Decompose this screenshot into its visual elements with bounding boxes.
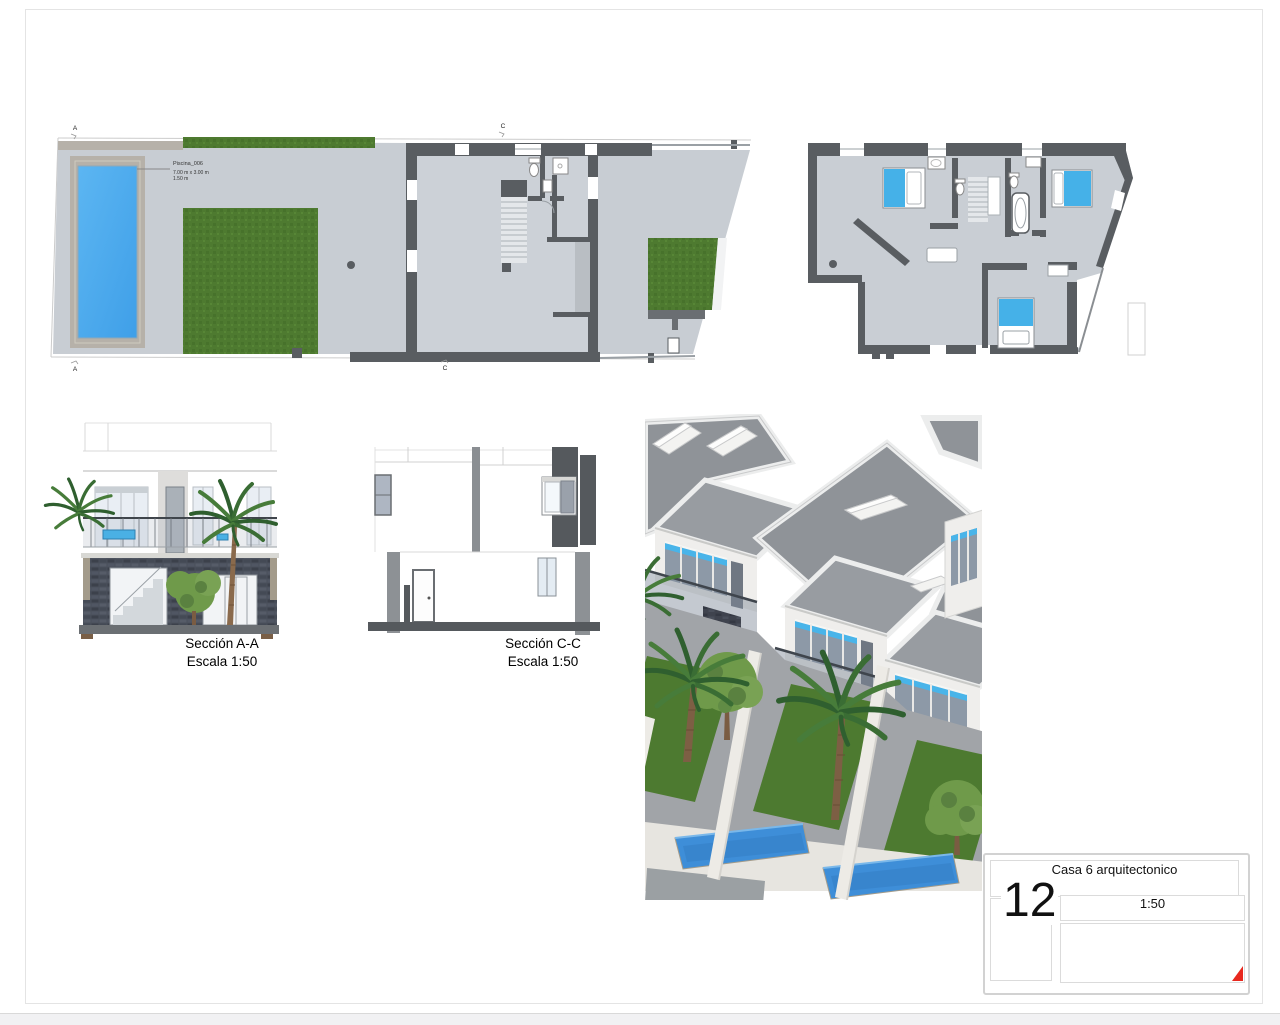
lawn [183,208,318,354]
section-aa-title: Sección A-A [185,636,259,651]
pool-label-name: Piscina_006 [173,161,203,167]
sink [543,180,552,192]
section-cc-title: Sección C-C [505,636,581,651]
pool [78,166,137,338]
sheet-scale-box: 1:50 [1060,895,1245,921]
upper-floor-plan [800,135,1150,365]
ground-floor-plan: Piscina_006 7.00 m x 3.00 m 1.50 m [45,118,790,376]
lounge-furniture [103,530,135,539]
pool-label-depth: 1.50 m [173,176,188,182]
sheet-title: Casa 6 arquitectonico [1052,862,1178,877]
title-block: Casa 6 arquitectonico 12 1:50 [983,853,1250,995]
page-margin-strip [0,1013,1280,1025]
toilet [530,164,539,177]
title-block-note-box [1060,923,1245,983]
section-aa-scale: Escala 1:50 [187,654,258,669]
shower [553,158,568,174]
section-cc-drawing: Sección C-C Escala 1:50 [368,428,600,676]
drawing-sheet: { "sheet": { "title": "Casa 6 arquitecto… [0,0,1280,1024]
section-cc-scale: Escala 1:50 [508,654,579,669]
section-aa-drawing: Sección A-A Escala 1:50 [75,415,285,675]
door [413,570,434,622]
sheet-number: 12 [1001,877,1058,925]
stairs [968,177,988,222]
section-marker-a-top: A [73,125,78,132]
red-corner-mark [1232,966,1243,981]
sheet-scale: 1:50 [1140,896,1165,911]
section-marker-c-bottom: C [443,365,448,372]
section-marker-a-bottom: A [73,366,78,373]
render-3d [645,410,985,905]
section-marker-c-top: C [501,123,506,130]
